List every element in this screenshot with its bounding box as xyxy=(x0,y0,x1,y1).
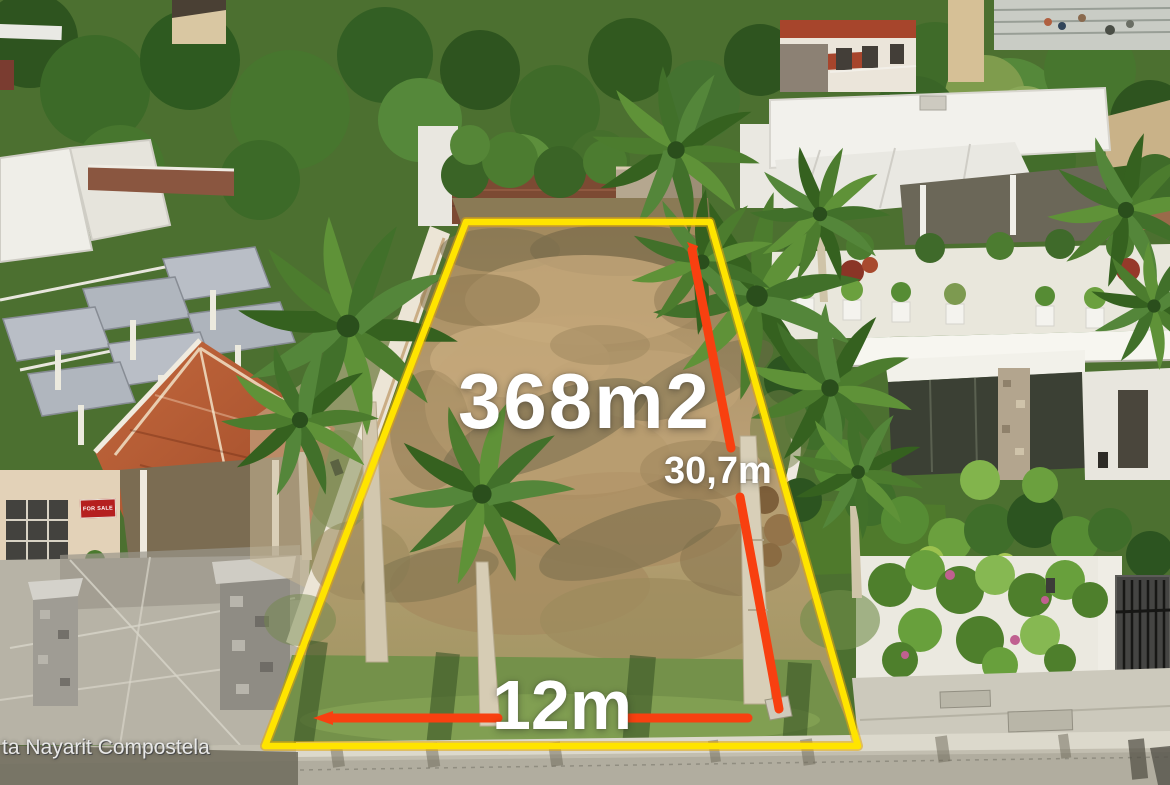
front-hedge-wall xyxy=(856,550,1122,684)
watermark-text: ta Nayarit Compostela xyxy=(2,736,210,759)
ac-unit xyxy=(920,96,946,110)
lot-depth-label: 30,7m xyxy=(664,452,772,490)
person-dot xyxy=(1078,14,1086,22)
lot-width-label: 12m xyxy=(492,670,632,740)
for-sale-sign: FOR SALE xyxy=(80,498,117,518)
utility-cover xyxy=(940,690,991,708)
rooftop-terrace xyxy=(994,0,1170,50)
utility-cover xyxy=(1008,710,1073,732)
barred-window xyxy=(6,500,68,562)
back-wall-white xyxy=(0,24,62,40)
stone-pillar-facade xyxy=(998,368,1030,480)
front-door xyxy=(1118,390,1148,468)
pink-flowers xyxy=(945,570,955,580)
tan-perimeter-wall xyxy=(948,0,984,82)
tan-building xyxy=(172,0,226,44)
back-shed-red xyxy=(0,60,14,90)
person-dot xyxy=(1044,18,1052,26)
wall-lamp xyxy=(1046,578,1055,593)
right-tile-roof-house xyxy=(780,20,916,92)
person-dot xyxy=(1058,22,1066,30)
aerial-photo: 368m2 30,7m 12m ta Nayarit Compostela FO… xyxy=(0,0,1170,785)
stone-pillar-left xyxy=(28,578,83,706)
lot-area-label: 368m2 xyxy=(458,362,711,440)
